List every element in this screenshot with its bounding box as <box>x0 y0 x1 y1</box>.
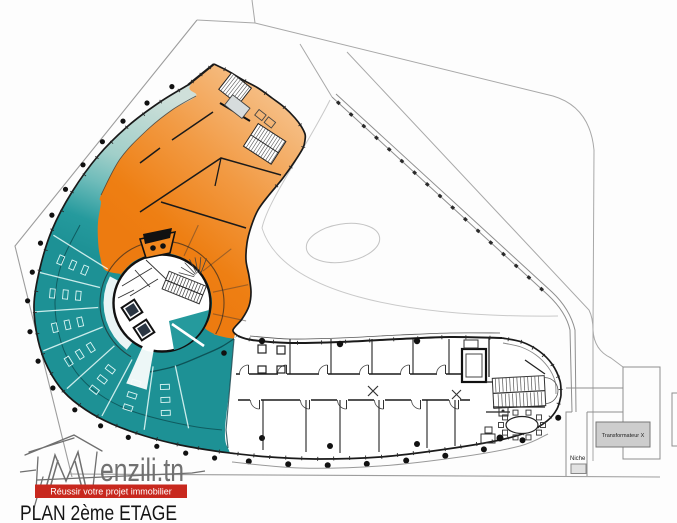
svg-text:Réussir votre projet immobilie: Réussir votre projet immobilier <box>50 487 172 497</box>
svg-text:Niche: Niche <box>570 456 586 462</box>
svg-text:Transformateur X: Transformateur X <box>602 433 645 439</box>
svg-text:PLAN 2ème ETAGE: PLAN 2ème ETAGE <box>20 502 177 523</box>
svg-text:enzili.tn: enzili.tn <box>100 452 184 488</box>
